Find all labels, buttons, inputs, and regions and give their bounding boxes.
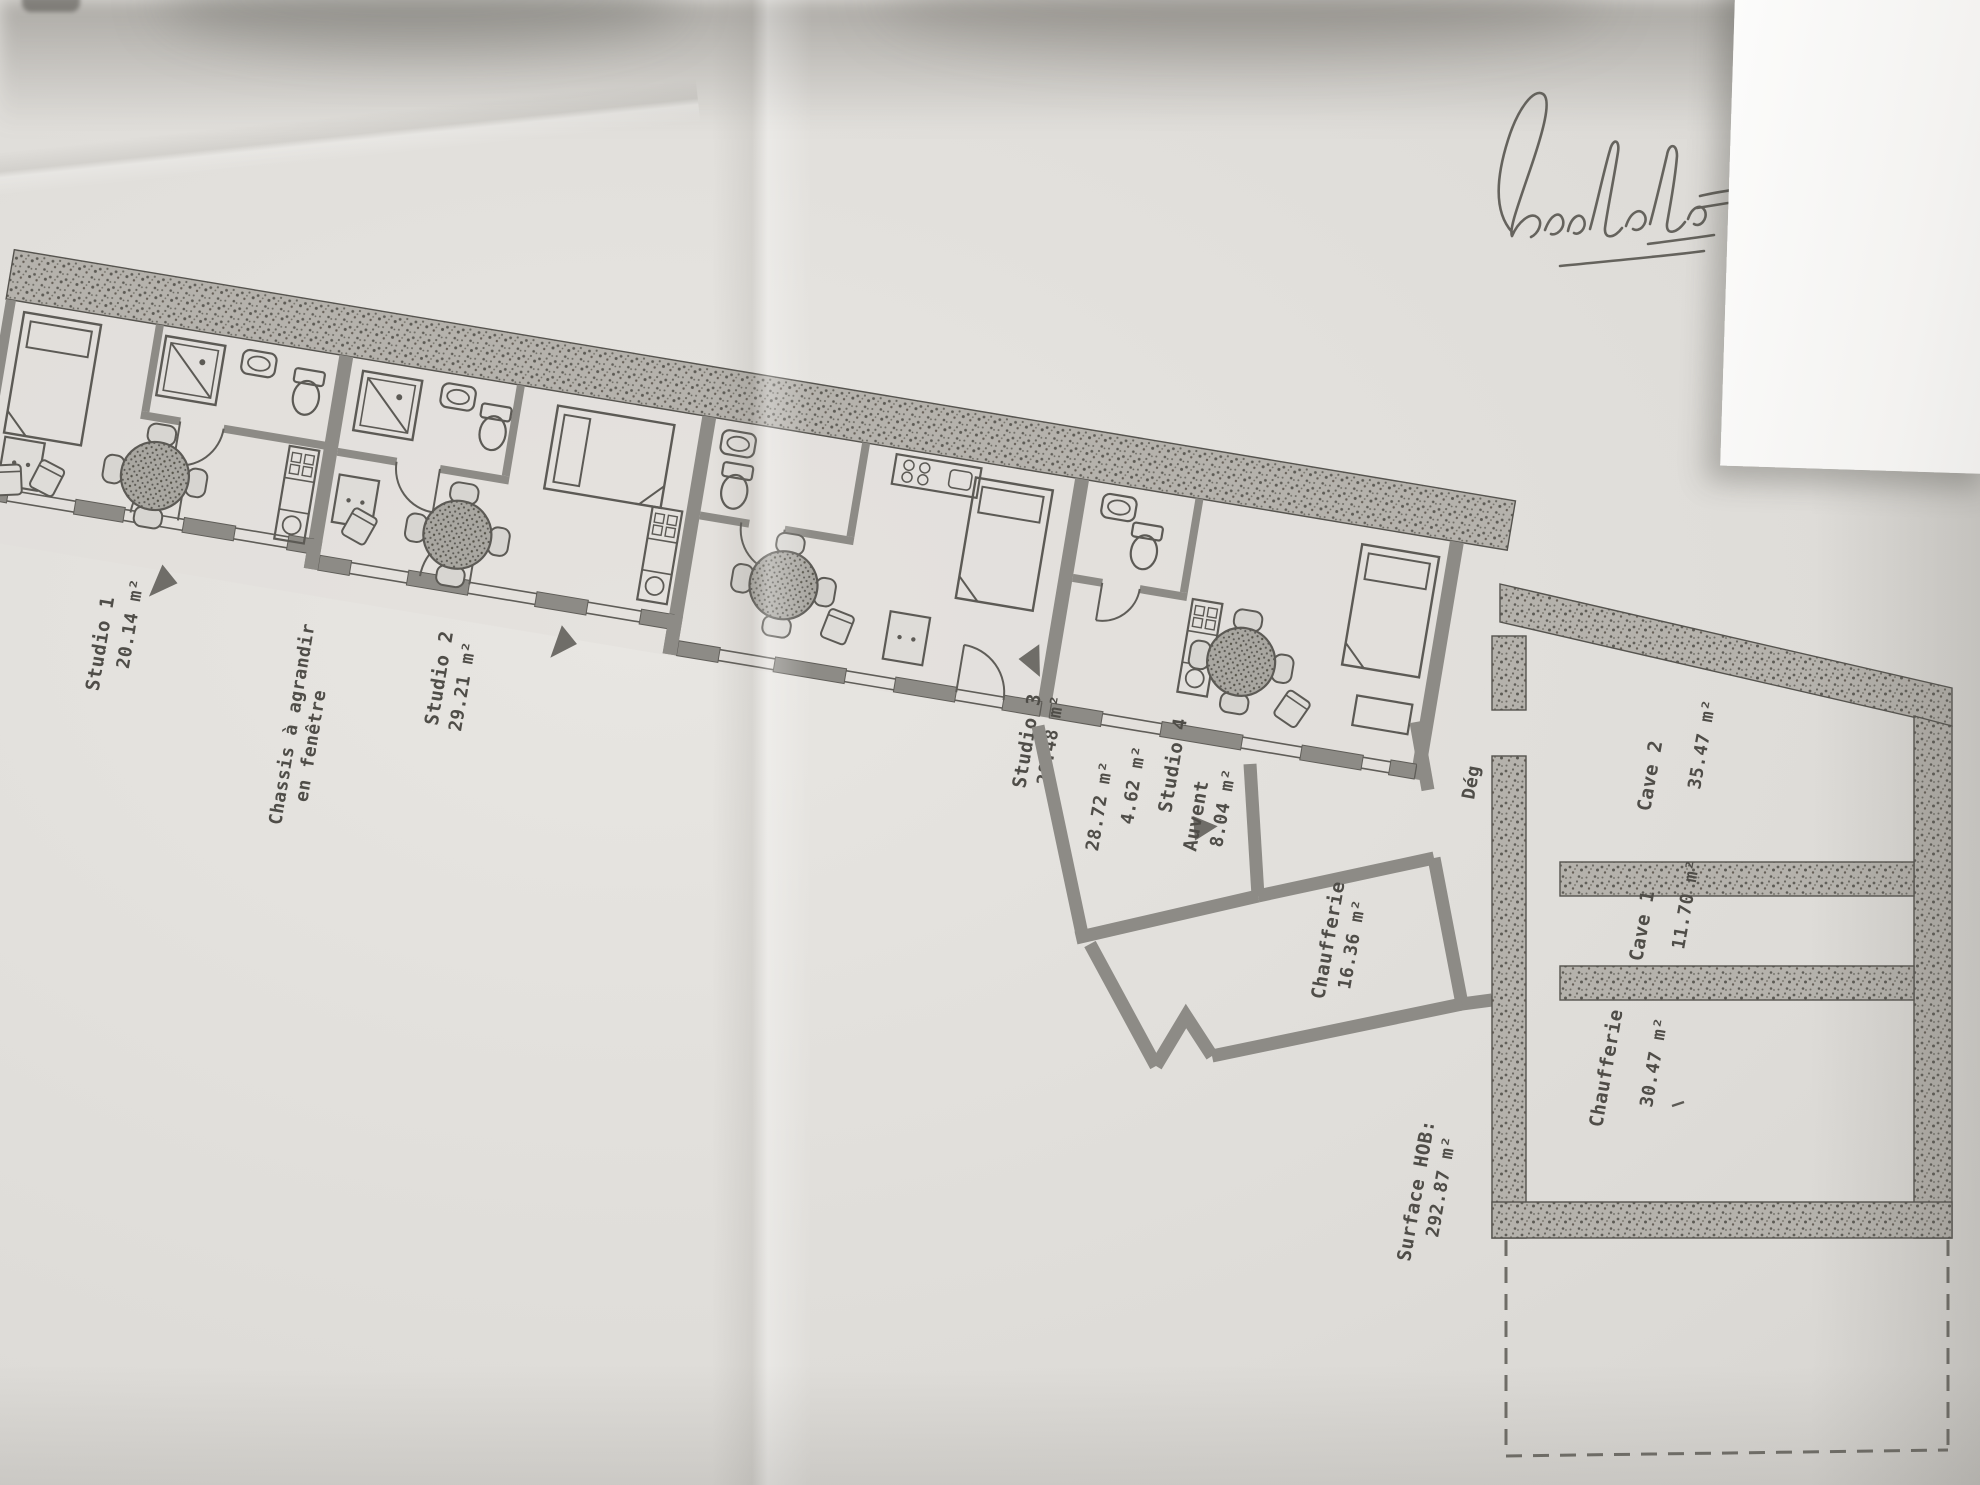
cave1-label: Cave 1	[1625, 888, 1659, 962]
cave-north-wall	[1500, 584, 1952, 726]
chaufferie-east-wall	[1434, 858, 1492, 1004]
cupboard-icon	[883, 611, 930, 665]
cave2-area: 35.47 m²	[1684, 698, 1720, 791]
floor-plan-photo: Studio 1 20.14 m² Chassis à agrandir en …	[0, 0, 1980, 1485]
chaufferie-basement-label: Chaufferie	[1585, 1007, 1627, 1128]
floor-plan-drawing: Studio 1 20.14 m² Chassis à agrandir en …	[0, 0, 1980, 1485]
cave-west-wall-lower	[1492, 756, 1526, 1238]
chaufferie-basement-area: 30.47 m²	[1636, 1016, 1672, 1109]
auvent-area: 8.04 m²	[1206, 767, 1240, 849]
degagement-label: Dég	[1458, 764, 1485, 801]
studio1-label: Studio 1	[82, 595, 119, 693]
wc-area: 4.62 m²	[1117, 744, 1151, 826]
chaufferie-west-wall	[1090, 944, 1156, 1066]
signature	[1499, 93, 1738, 266]
dashed-boundary-south	[1506, 1450, 1948, 1456]
auvent-east-wall	[1250, 764, 1258, 896]
chair-icon	[0, 464, 22, 495]
cave-divider-wall-1	[1560, 862, 1914, 896]
auvent-south-wall	[1076, 896, 1258, 938]
studio3-alt-area: 28.72 m²	[1082, 760, 1118, 853]
cave-east-wall	[1914, 716, 1952, 1238]
cave-south-wall	[1492, 1202, 1952, 1238]
auvent-west-wall	[1038, 726, 1082, 934]
tick-mark	[1672, 1102, 1684, 1106]
cave-block	[1492, 584, 1952, 1456]
chaufferie-notch	[1156, 1016, 1212, 1066]
studio1-area: 20.14 m²	[113, 577, 149, 670]
cave2-label: Cave 2	[1633, 738, 1667, 812]
cave-west-wall-upper	[1492, 636, 1526, 710]
cave-divider-wall-2	[1560, 966, 1914, 1000]
dashed-boundary	[1506, 1240, 1948, 1456]
overlapping-paper-card	[1720, 0, 1980, 474]
chaufferie-south-wall	[1212, 1004, 1462, 1056]
building-strip: Studio 1 20.14 m² Chassis à agrandir en …	[0, 250, 1515, 1018]
